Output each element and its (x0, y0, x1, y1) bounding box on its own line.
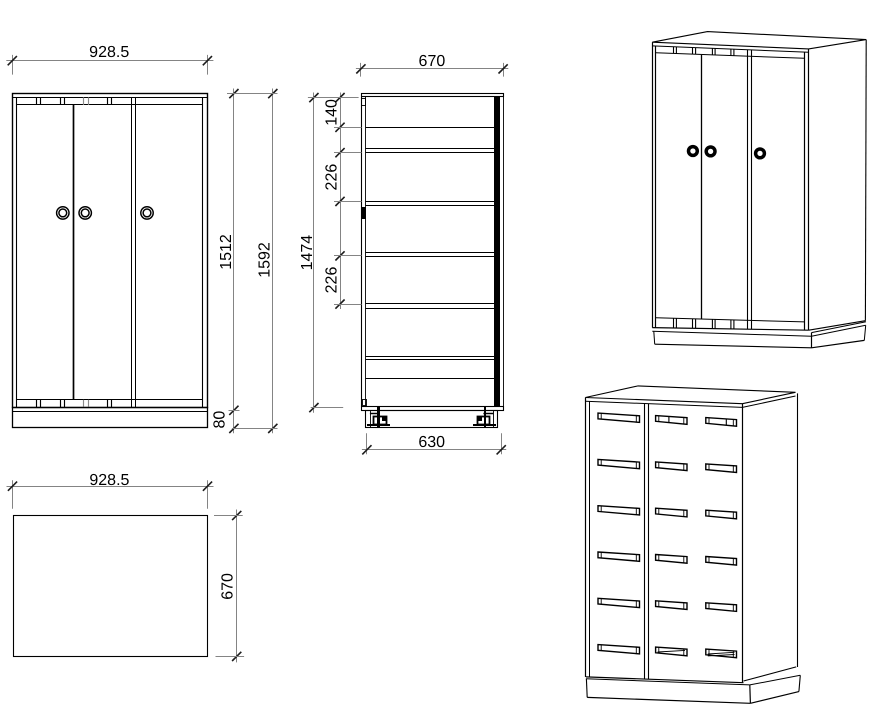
svg-text:670: 670 (220, 573, 237, 600)
svg-text:80: 80 (211, 411, 228, 429)
svg-text:226: 226 (323, 164, 340, 191)
svg-text:1474: 1474 (299, 235, 316, 271)
svg-text:1592: 1592 (256, 242, 273, 278)
svg-text:928.5: 928.5 (89, 44, 129, 61)
svg-text:630: 630 (418, 434, 445, 451)
svg-text:226: 226 (323, 267, 340, 294)
svg-text:140: 140 (323, 99, 340, 126)
svg-text:670: 670 (419, 53, 446, 70)
svg-text:1512: 1512 (218, 234, 235, 270)
